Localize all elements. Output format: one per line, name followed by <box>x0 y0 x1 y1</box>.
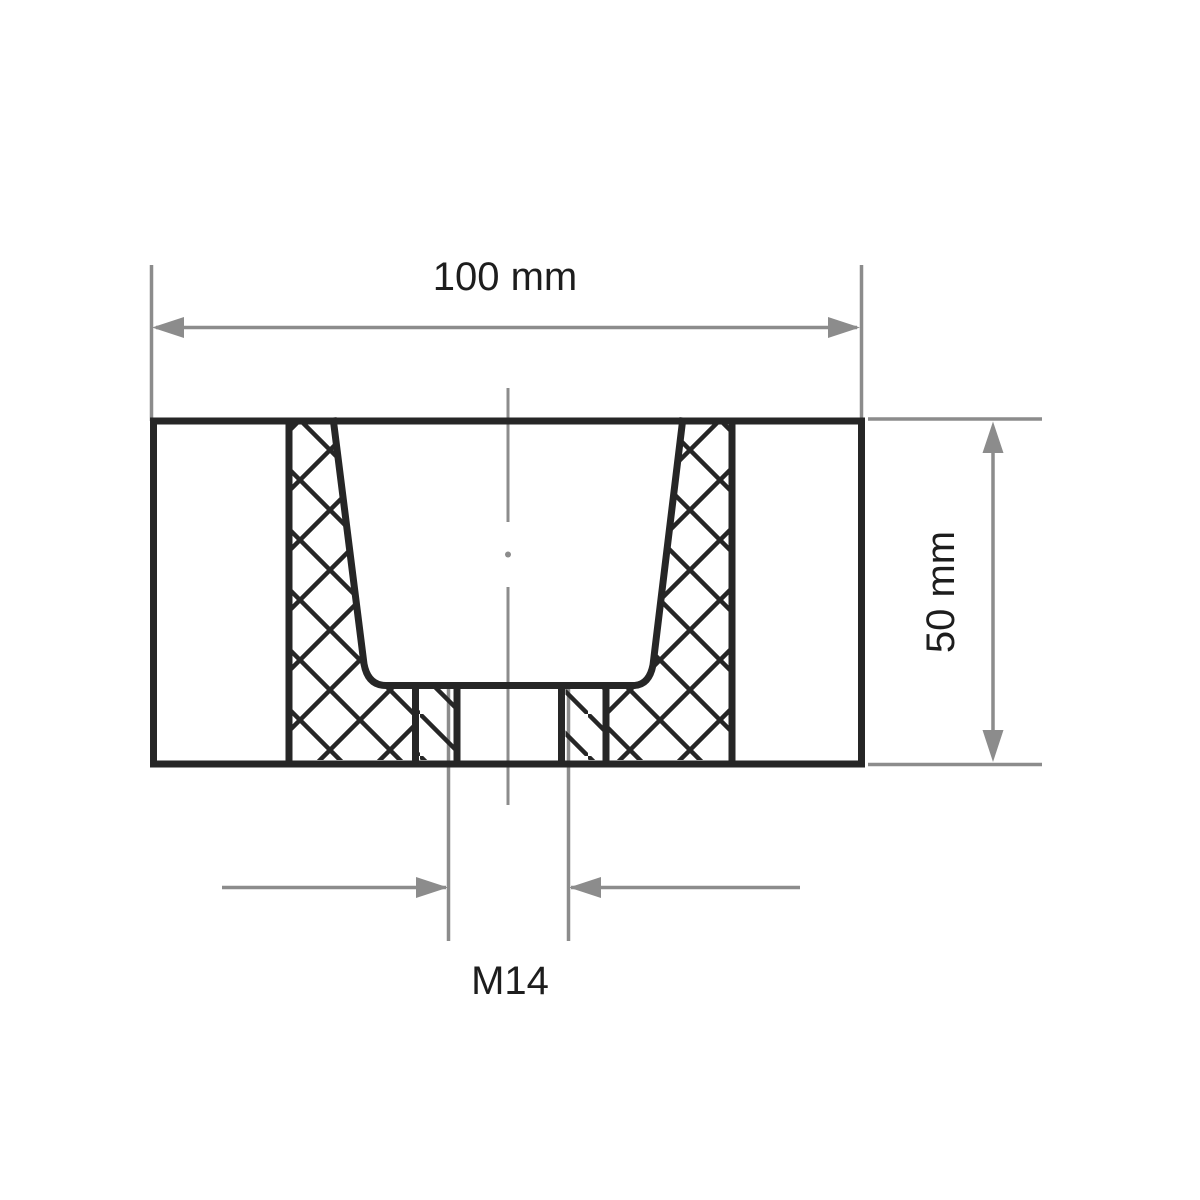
thread-hatch-block-left <box>419 689 454 760</box>
dimension-lines-group <box>152 265 1043 941</box>
dimension-arrowheads-group <box>152 317 1004 898</box>
height-arrow-top-icon <box>983 422 1004 454</box>
thread-hatch-block-right <box>566 689 603 760</box>
center-line-dot <box>505 552 511 558</box>
hatch-area-right <box>606 425 729 761</box>
width-dimension-label: 100 mm <box>433 255 578 299</box>
height-arrow-bottom-icon <box>983 730 1004 762</box>
width-arrow-left-icon <box>152 317 184 338</box>
technical-drawing: 100 mm 50 mm M14 <box>0 0 1200 1200</box>
thread-arrow-right-icon <box>569 877 601 898</box>
height-dimension-label: 50 mm <box>919 531 963 653</box>
width-arrow-right-icon <box>828 317 860 338</box>
thread-arrow-left-icon <box>416 877 448 898</box>
thread-dimension-label: M14 <box>471 959 549 1003</box>
